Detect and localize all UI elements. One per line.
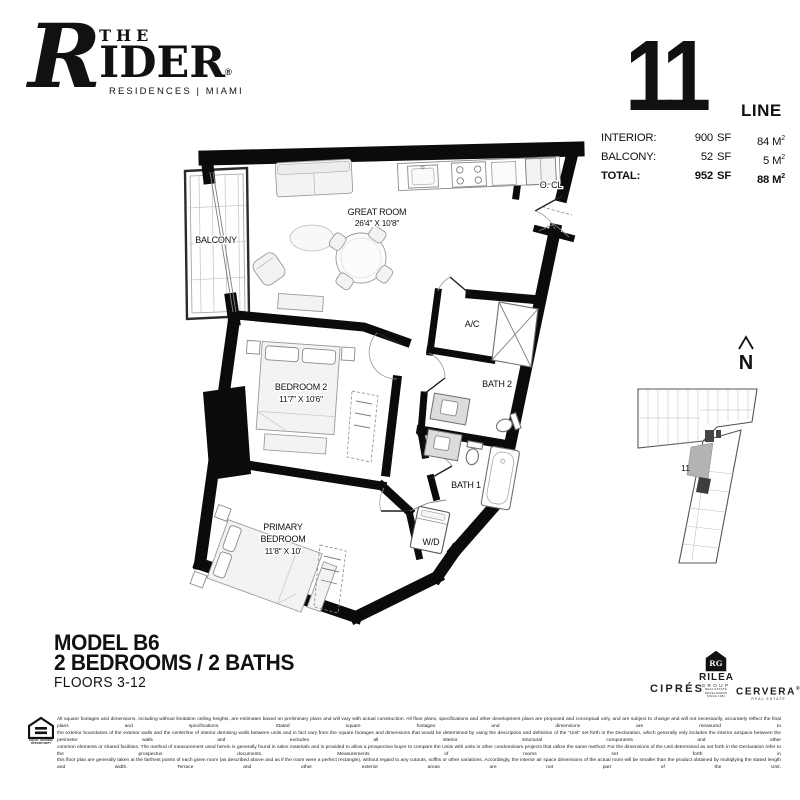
rilea-name: RILEA — [699, 673, 733, 683]
model-info: MODEL B6 2 BEDROOMS / 2 BATHS FLOORS 3-1… — [54, 633, 294, 691]
disclaimer-line-3: common elements or shared facilities. Th… — [57, 745, 781, 759]
bath2-label: BATH 2 — [482, 379, 512, 389]
cervera-name: CERVERA® — [736, 684, 800, 697]
armchair — [250, 250, 287, 288]
disclaimer-line-1: All square footages and dimensions, incl… — [57, 717, 781, 731]
model-floors: FLOORS 3-12 — [54, 675, 294, 691]
great-room-dims: 26'4" X 10'8" — [355, 218, 400, 228]
bedroom2-dims: 11'7" X 10'6" — [279, 394, 323, 404]
sofa — [275, 159, 353, 197]
primary-dims: 11'8" X 10' — [265, 546, 302, 556]
bath1-label: BATH 1 — [451, 480, 481, 490]
nightstand — [246, 340, 260, 354]
kitchen — [397, 157, 560, 191]
balcony-label: BALCONY — [195, 235, 237, 245]
keyplan-unit-label: 11 — [681, 463, 690, 473]
primary-label-1: PRIMARY — [263, 522, 303, 532]
nightstand — [214, 505, 231, 522]
great-room-furniture — [250, 159, 394, 312]
cervera-tagline: REAL ESTATE — [736, 697, 800, 701]
key-plan: N 11 — [638, 337, 757, 563]
washer-dryer-label: W/D — [423, 537, 441, 547]
rilea-monogram-icon: RG — [705, 650, 727, 672]
bath1-toilet — [464, 441, 483, 466]
bench — [264, 434, 327, 454]
floorplan-sheet: { "brand": { "initial": "R", "the": "THE… — [0, 0, 800, 800]
rilea-tagline-2: SINCE 1981 — [699, 695, 733, 699]
equal-housing-icon — [28, 716, 54, 739]
ac-closet-label: A/C — [465, 319, 480, 329]
great-room-label: GREAT ROOM — [348, 207, 407, 217]
bath2-vanity — [430, 393, 470, 425]
cervera-logo: CERVERA® REAL ESTATE — [736, 684, 800, 701]
north-arrow-icon — [739, 337, 753, 349]
svg-text:RG: RG — [709, 658, 722, 668]
cipres-logo: CIPRÉS — [650, 683, 704, 695]
equal-housing-text-2: OPPORTUNITY — [27, 742, 55, 745]
bedroom2-label: BEDROOM 2 — [275, 382, 327, 392]
bathtub — [481, 446, 520, 510]
console — [278, 293, 324, 311]
nightstand — [341, 347, 355, 361]
disclaimer-line-4: this floor plan are generally taken at t… — [57, 758, 781, 772]
legal-disclaimer: All square footages and dimensions, incl… — [57, 717, 781, 772]
model-subtitle: 2 BEDROOMS / 2 BATHS — [54, 653, 294, 673]
rilea-logo: RG RILEA GROUP REAL ESTATE DEVELOPERS SI… — [699, 650, 733, 699]
rug — [290, 225, 334, 251]
north-label: N — [739, 352, 753, 374]
dining-table — [328, 225, 395, 292]
nightstand — [190, 571, 207, 588]
equal-housing-logo: EQUAL HOUSING OPPORTUNITY — [27, 716, 55, 745]
entry-closet-label: O. CL — [540, 180, 563, 190]
disclaimer-line-2: the exterior boundaries of the exterior … — [57, 731, 781, 745]
primary-label-2: BEDROOM — [260, 534, 305, 544]
bath1-vanity — [424, 429, 462, 461]
kitchen-stove — [451, 162, 486, 187]
